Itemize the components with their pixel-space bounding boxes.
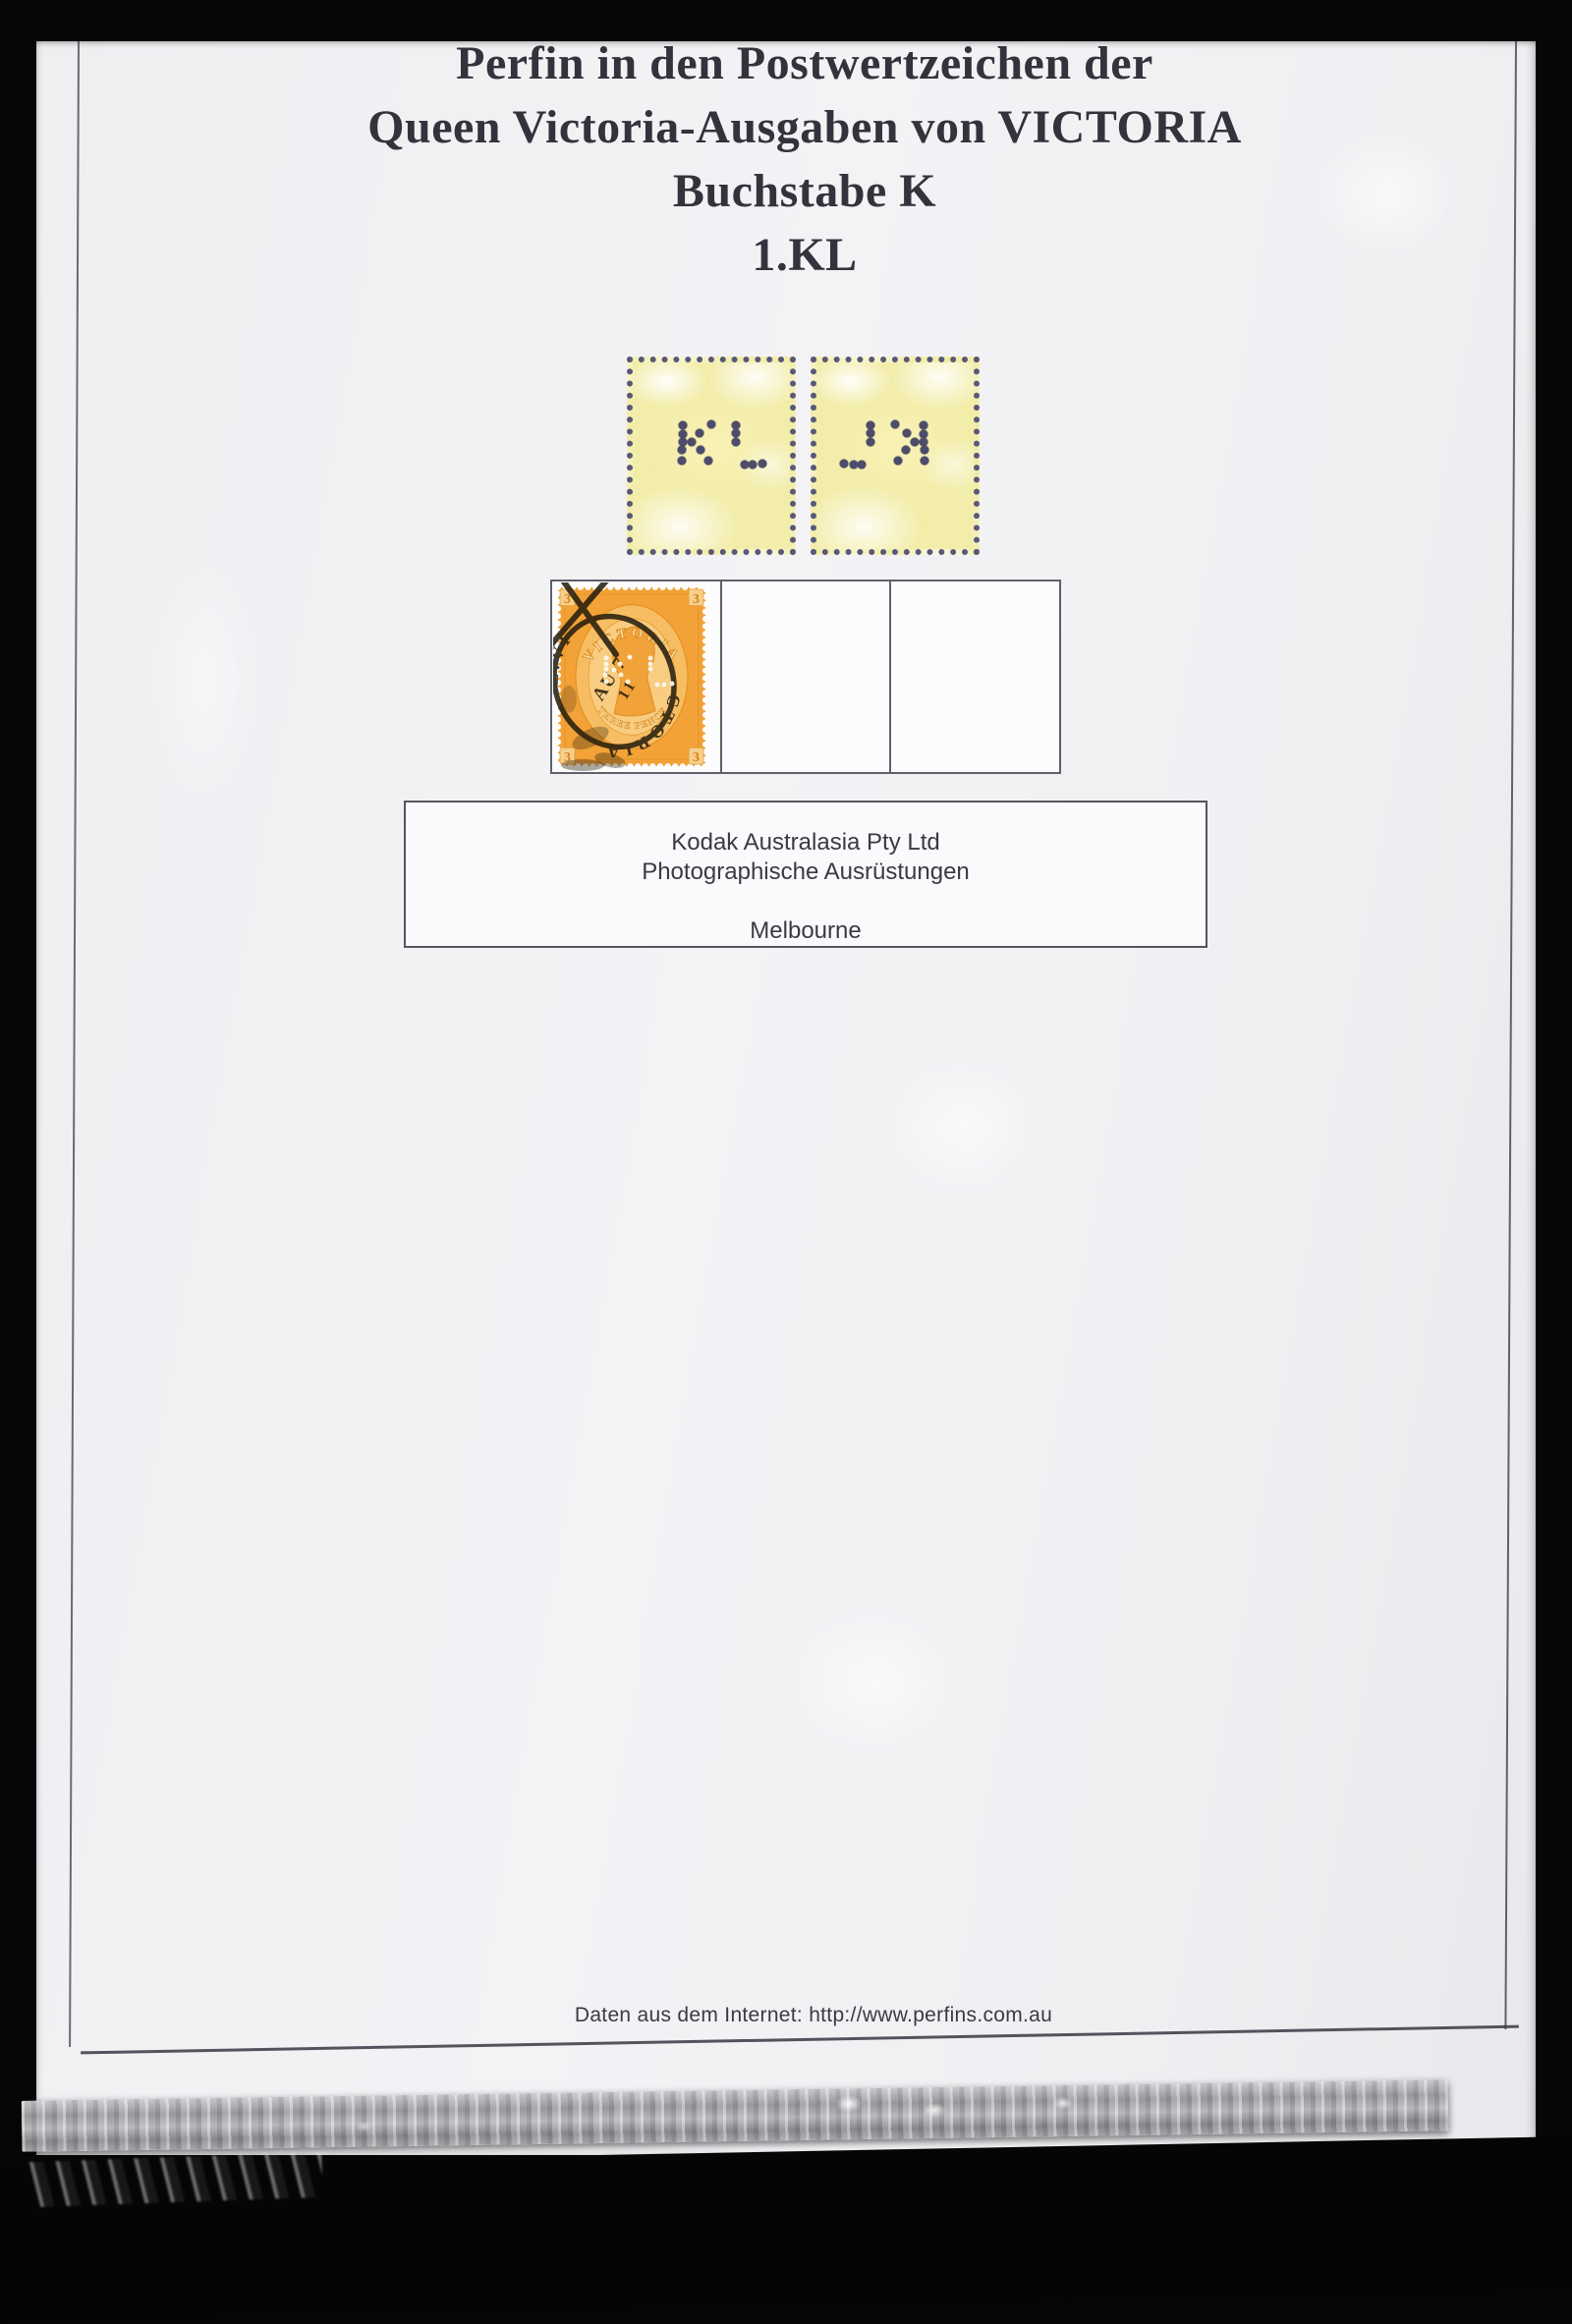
perfin-scan-front xyxy=(627,357,796,555)
svg-text:3: 3 xyxy=(693,750,700,765)
svg-text:3: 3 xyxy=(693,592,700,607)
album-page: Perfin in den Postwertzeichen der Queen … xyxy=(36,41,1536,2155)
title-line-4: 1.KL xyxy=(74,223,1536,287)
stamp-cell-2-empty xyxy=(722,581,892,772)
stamp-cell-3-empty xyxy=(891,581,1059,772)
stamp-cell-1: VICTORIA THREE PENCE 3 3 3 3 xyxy=(552,581,722,772)
title-line-2: Queen Victoria-Ausgaben von VICTORIA xyxy=(74,95,1536,159)
company-name: Kodak Australasia Pty Ltd xyxy=(406,828,1206,858)
company-caption-box: Kodak Australasia Pty Ltd Photographisch… xyxy=(404,801,1207,948)
scan-glare-spot xyxy=(144,552,262,807)
perfin-scan-back-mirrored xyxy=(811,357,980,555)
source-note: Daten aus dem Internet: http://www.perfi… xyxy=(36,2004,1536,2027)
company-description: Photographische Ausrüstungen xyxy=(406,858,1206,887)
scan-glare-spot xyxy=(881,1053,1048,1200)
page-frame-bottom-line xyxy=(81,2025,1519,2055)
title-line-1: Perfin in den Postwertzeichen der xyxy=(74,31,1536,95)
perfin-holes-kl-mirrored xyxy=(816,362,974,549)
page-frame-left-line xyxy=(69,41,80,2047)
stamp-mount-grid: VICTORIA THREE PENCE 3 3 3 3 xyxy=(550,580,1061,774)
stamp-perfin-holes xyxy=(565,616,695,742)
perfin-holes-kl xyxy=(633,362,790,549)
page-frame-right-line xyxy=(1504,41,1517,2029)
scan-glare-spot xyxy=(1314,130,1461,257)
victoria-3d-orange-stamp: VICTORIA THREE PENCE 3 3 3 3 xyxy=(553,582,710,771)
scan-glare-spot xyxy=(783,1603,970,1760)
company-city: Melbourne xyxy=(406,916,1206,946)
page-title: Perfin in den Postwertzeichen der Queen … xyxy=(36,31,1536,287)
